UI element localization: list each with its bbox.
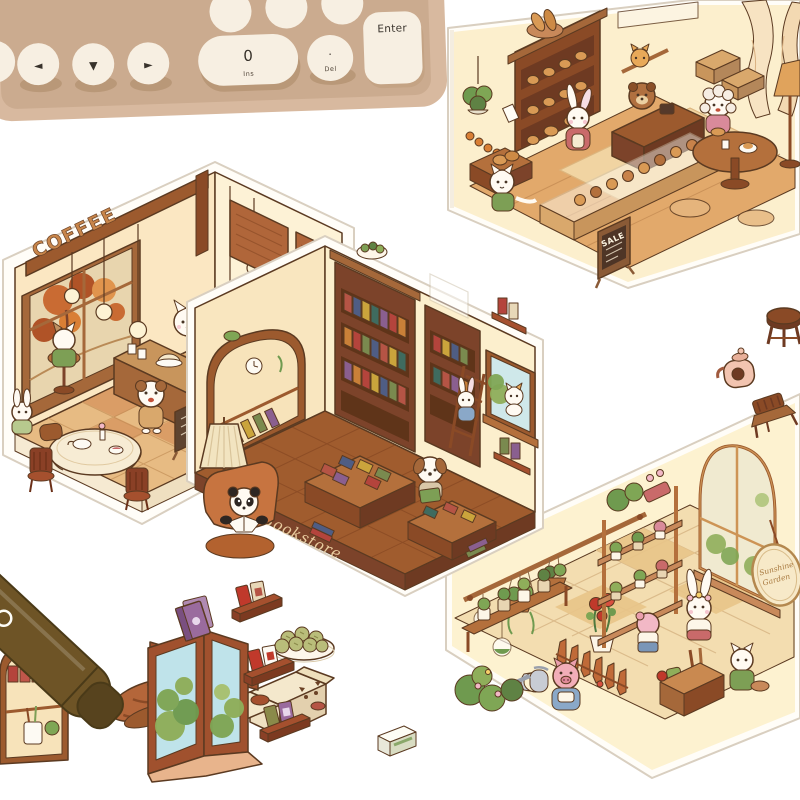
mini-shelf-sticker-top — [232, 581, 282, 622]
zero-key-sublabel: Ins — [243, 70, 254, 78]
small-box-sticker — [378, 726, 416, 756]
coffee-floor-bag — [39, 423, 63, 442]
bakery-rug-2 — [738, 210, 774, 226]
bakery-room: SALE — [448, 0, 800, 288]
arrow-right-icon: ► — [144, 58, 153, 71]
zero-key: 0 Ins — [197, 33, 301, 93]
bookstore-room: Bookstore — [187, 236, 543, 596]
keyboard: ◄ ▼ ► 0 Ins . Del Enter — [0, 0, 448, 122]
dot-key-sublabel: Del — [324, 65, 337, 73]
enter-key: Enter — [363, 11, 426, 89]
stool-sticker — [767, 308, 800, 347]
arrow-left-icon: ◄ — [34, 59, 43, 72]
product-photo: ◄ ▼ ► 0 Ins . Del Enter — [0, 0, 800, 800]
coffee-chair-left — [28, 448, 54, 492]
purple-books-sticker — [175, 596, 213, 642]
bear-cashier — [629, 83, 656, 110]
teapot-sticker — [718, 348, 756, 389]
arrow-down-icon: ▼ — [89, 59, 98, 72]
panda-in-armchair — [204, 462, 278, 558]
white-cat-in-window — [505, 383, 523, 416]
corner-window-sticker — [148, 630, 262, 782]
enter-key-label: Enter — [377, 22, 407, 35]
matcha-buns-plate-sticker — [274, 627, 334, 662]
pink-piglet — [636, 612, 659, 652]
scene: ◄ ▼ ► 0 Ins . Del Enter — [0, 0, 800, 800]
dot-key-label: . — [328, 45, 332, 58]
zero-key-label: 0 — [243, 47, 253, 65]
bakery-rug-1 — [670, 199, 710, 217]
